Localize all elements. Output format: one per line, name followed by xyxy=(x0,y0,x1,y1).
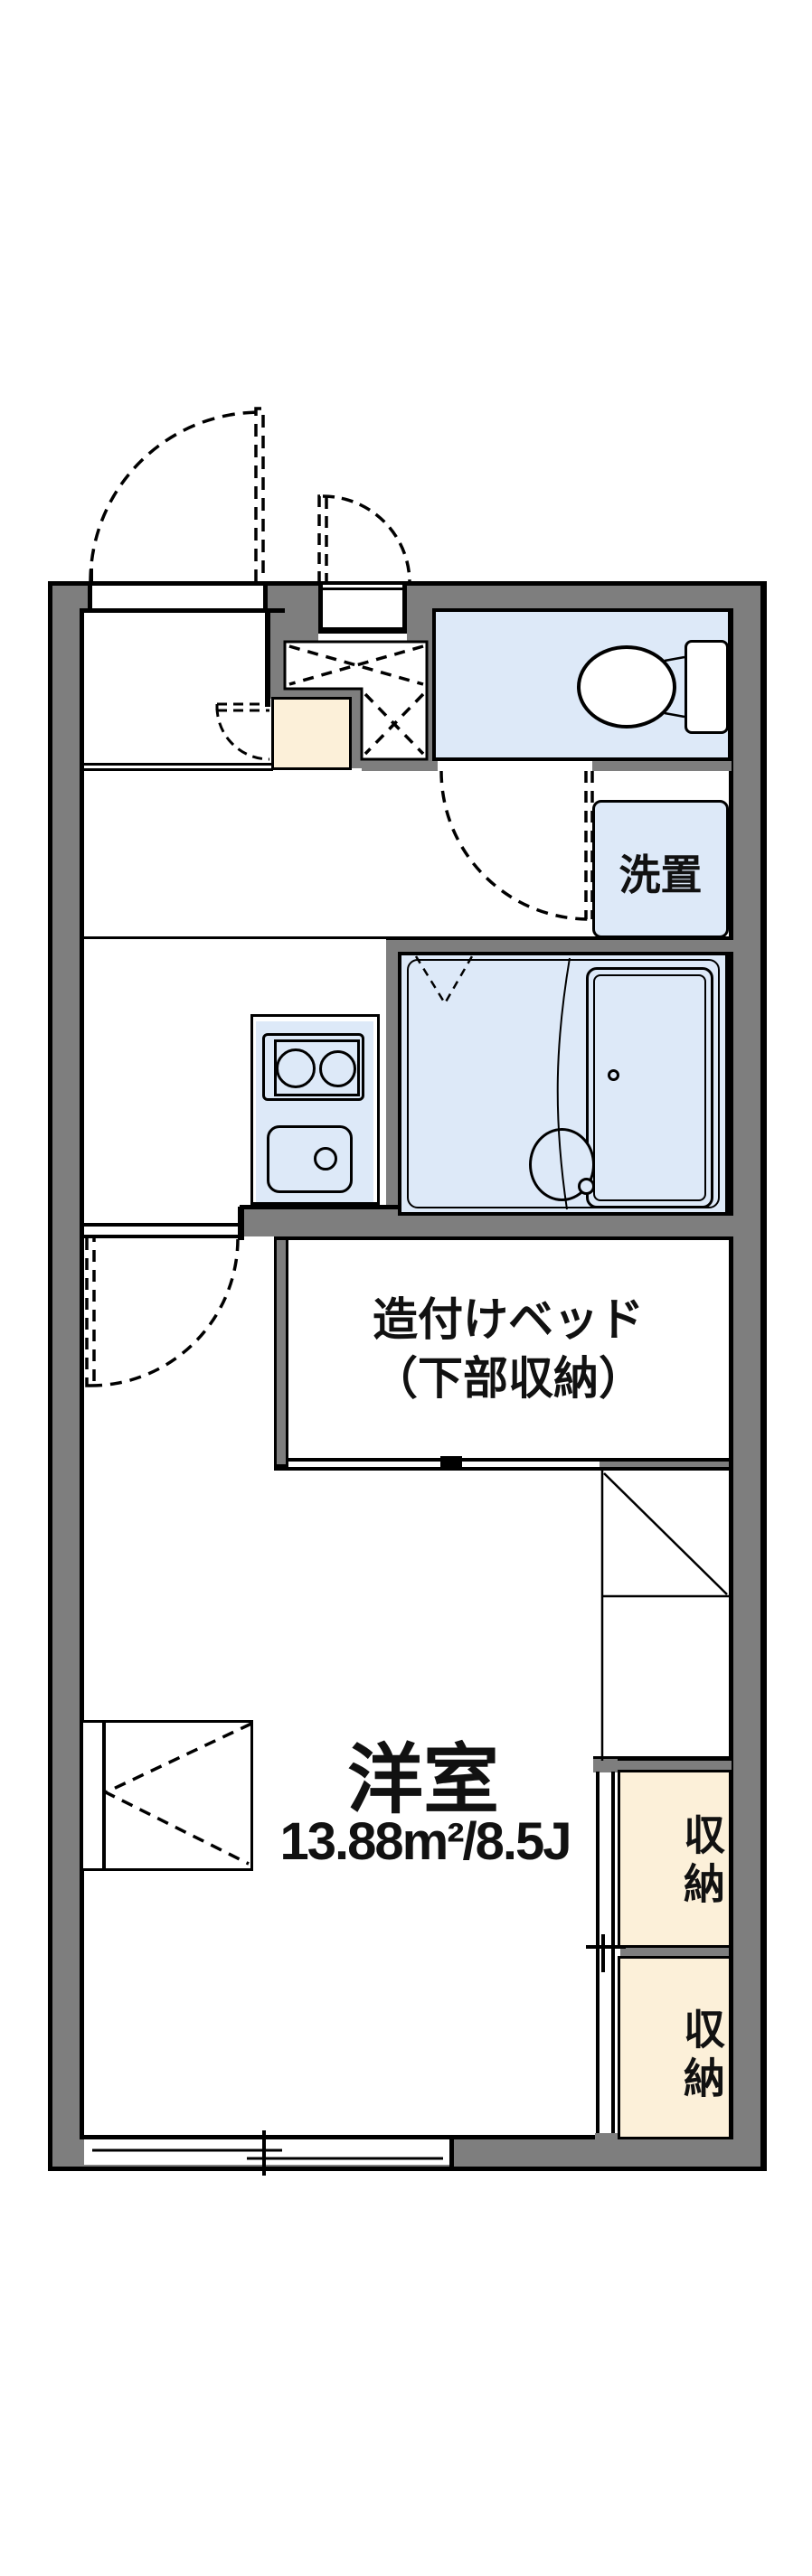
floorplan-linework xyxy=(0,0,812,2576)
western-room-door-swing xyxy=(87,1238,238,1386)
refrigerator-space xyxy=(602,1471,729,1761)
interior-door-swing xyxy=(217,704,269,759)
toilet-door-swing xyxy=(441,771,592,919)
bay-window-chevron xyxy=(106,1724,251,1864)
bottom-window-panes xyxy=(92,2130,443,2176)
genkan-floor xyxy=(285,642,427,759)
entrance-door-swing xyxy=(319,496,410,583)
floor-plan: 洗置 造付けベッド （下部収納） 収納 収納 洋室 1 xyxy=(0,0,812,2576)
bath-partition-curve xyxy=(558,958,570,1209)
bath-folding-door xyxy=(416,956,472,1003)
top-window-door-swing xyxy=(90,409,263,582)
toilet-connectors xyxy=(665,657,685,717)
